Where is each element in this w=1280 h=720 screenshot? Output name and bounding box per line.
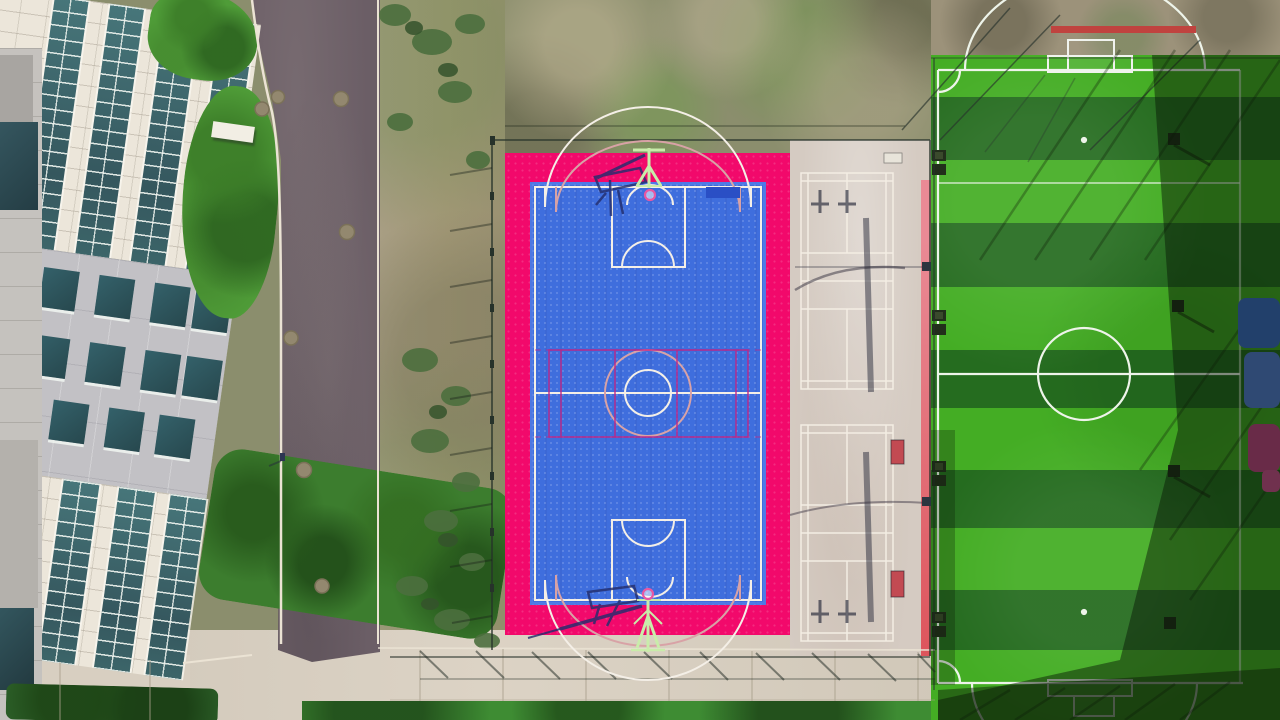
glass-curtain-strip — [94, 487, 155, 673]
scrubland — [500, 0, 936, 158]
gravel-ground — [931, 0, 1280, 58]
glass-curtain-strip — [38, 479, 99, 665]
grass-strip — [302, 701, 938, 720]
badminton-concrete — [790, 140, 931, 656]
aerial-campus-photo — [0, 0, 1280, 720]
glass-curtain-strip — [145, 494, 206, 680]
red-edging-strip — [921, 180, 931, 656]
building-skylight — [0, 122, 38, 210]
glass-curtain-strip — [75, 4, 144, 258]
building-left-panel — [0, 55, 33, 123]
basketball-court — [530, 182, 766, 605]
building-left-panel — [0, 440, 38, 608]
building-skylight — [0, 608, 34, 690]
hedge — [6, 683, 219, 720]
pitch-texture — [931, 55, 1280, 720]
